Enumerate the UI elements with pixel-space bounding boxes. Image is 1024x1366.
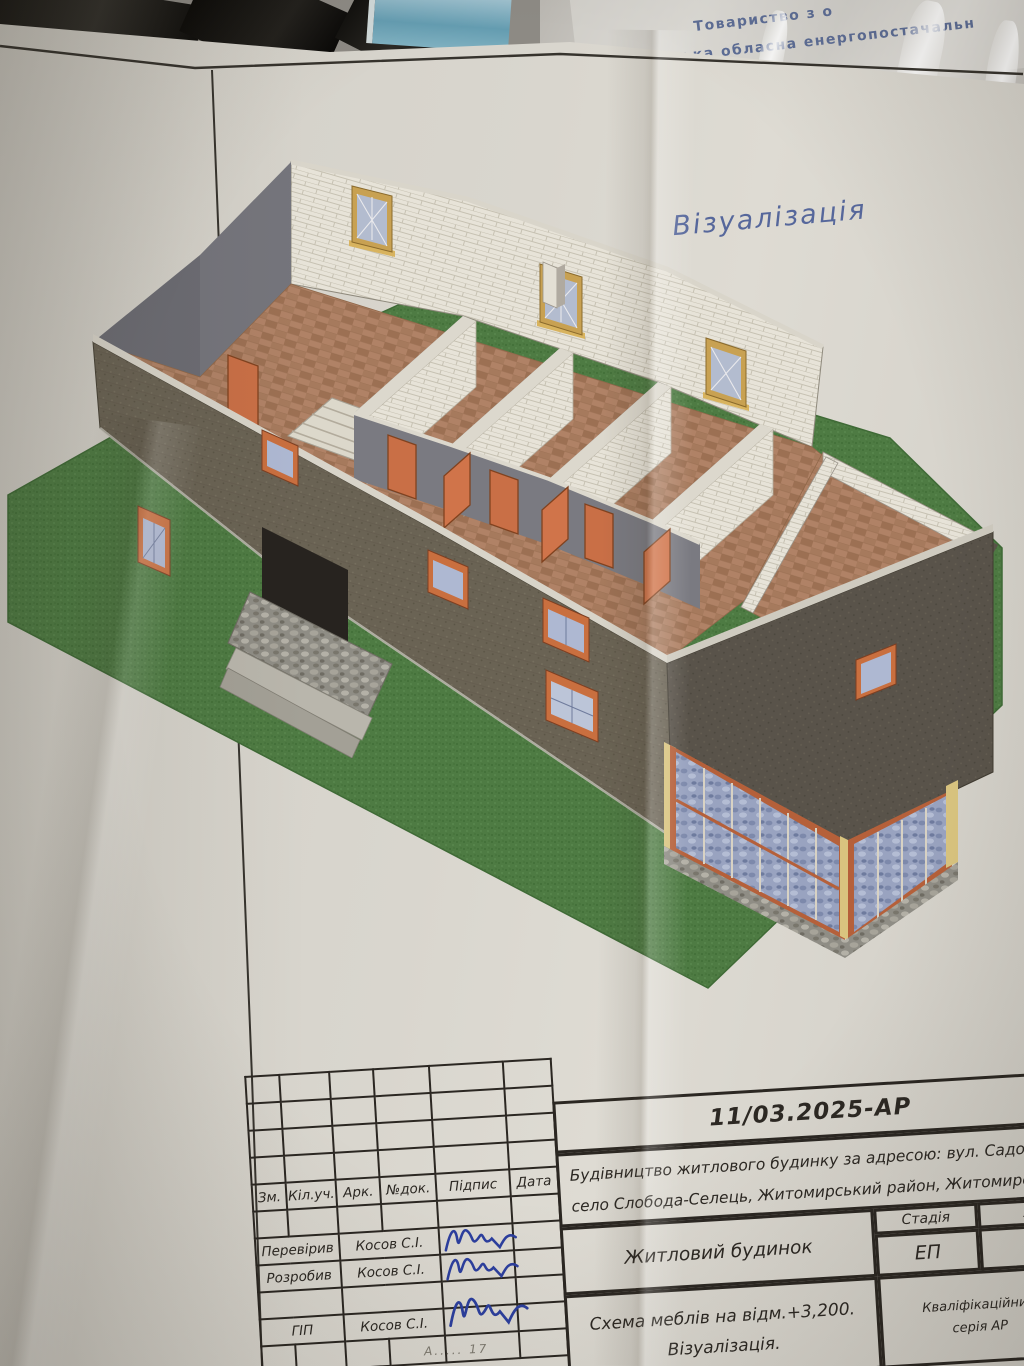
photo-of-drawing-sheet: Товариство з о итомирська обласна енерго… xyxy=(0,0,1024,1366)
photo-vignette xyxy=(0,0,1024,1366)
